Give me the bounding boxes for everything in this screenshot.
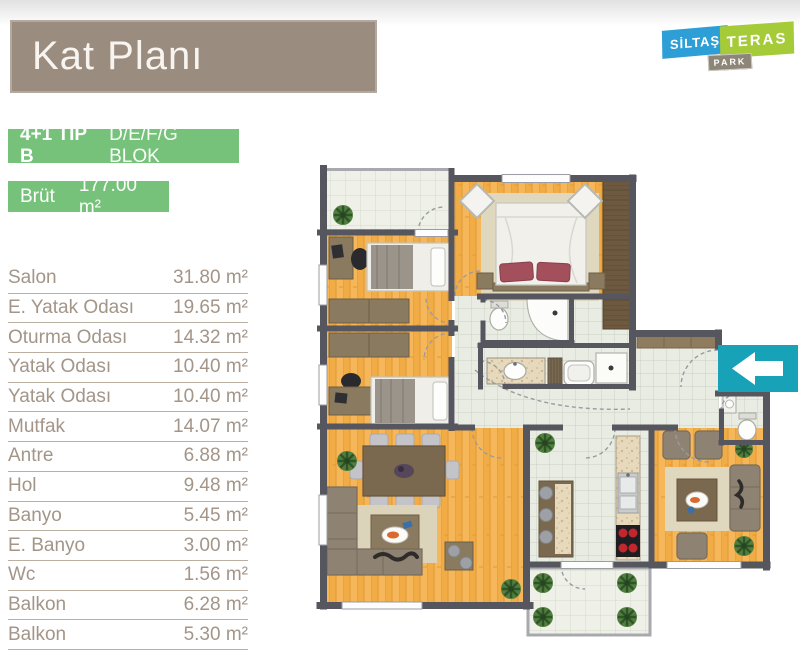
room-name: Balkon <box>8 594 66 616</box>
room-area: 6.28 m² <box>184 594 248 616</box>
table-row: Balkon6.28 m² <box>8 591 248 621</box>
antre-cabinet <box>637 336 717 348</box>
room-area: 5.45 m² <box>184 505 248 527</box>
table-row: Mutfak14.07 m² <box>8 412 248 442</box>
table-row: Banyo5.45 m² <box>8 502 248 532</box>
table-row: Yatak Odası10.40 m² <box>8 383 248 413</box>
room-name: Salon <box>8 267 57 289</box>
room-name: Wc <box>8 564 35 586</box>
unit-type-badge: 4+1 TİP B D/E/F/G BLOK <box>8 129 239 163</box>
table-row: Balkon5.30 m² <box>8 620 248 650</box>
room-area: 3.00 m² <box>184 535 248 557</box>
siltas-teras-park-logo: SİLTAŞ TERAS PARK <box>660 18 794 70</box>
room-area: 10.40 m² <box>173 356 248 378</box>
room-name: Antre <box>8 445 53 467</box>
room-name: Yatak Odası <box>8 386 111 408</box>
main-bath-fixtures <box>487 353 627 385</box>
room-area: 1.56 m² <box>184 564 248 586</box>
gross-area-label: Brüt <box>20 186 55 208</box>
room-area: 9.48 m² <box>184 475 248 497</box>
table-row: E. Yatak Odası19.65 m² <box>8 294 248 324</box>
floor-plan-image <box>315 165 800 663</box>
room-area-table: Salon31.80 m² E. Yatak Odası19.65 m² Otu… <box>8 264 248 650</box>
table-row: Wc1.56 m² <box>8 561 248 591</box>
room-name: E. Yatak Odası <box>8 297 134 319</box>
room-name: E. Banyo <box>8 535 85 557</box>
page-title: Kat Planı <box>32 34 203 79</box>
room-area: 14.07 m² <box>173 416 248 438</box>
gross-area-value: 177.00 m² <box>79 175 157 219</box>
page-header-banner: Kat Planı <box>10 20 377 93</box>
logo-park-shape: PARK <box>708 53 753 71</box>
table-row: Hol9.48 m² <box>8 472 248 502</box>
table-row: Oturma Odası14.32 m² <box>8 323 248 353</box>
room-area: 5.30 m² <box>184 624 248 646</box>
room-area: 19.65 m² <box>173 297 248 319</box>
table-row: Antre6.88 m² <box>8 442 248 472</box>
table-row: Salon31.80 m² <box>8 264 248 294</box>
room-name: Yatak Odası <box>8 356 111 378</box>
table-row: Yatak Odası10.40 m² <box>8 353 248 383</box>
room-name: Banyo <box>8 505 62 527</box>
entrance-arrow <box>718 345 798 392</box>
room-area: 14.32 m² <box>173 327 248 349</box>
unit-block-label: D/E/F/G BLOK <box>109 124 227 168</box>
room-name: Balkon <box>8 624 66 646</box>
room-name: Mutfak <box>8 416 65 438</box>
table-row: E. Banyo3.00 m² <box>8 531 248 561</box>
room-name: Hol <box>8 475 37 497</box>
unit-type-label: 4+1 TİP B <box>20 124 101 168</box>
room-area: 6.88 m² <box>184 445 248 467</box>
room-name: Oturma Odası <box>8 327 127 349</box>
gross-area-badge: Brüt 177.00 m² <box>8 181 169 212</box>
room-area: 10.40 m² <box>173 386 248 408</box>
room-area: 31.80 m² <box>173 267 248 289</box>
kat-plani-page: { "header": { "title": "Kat Planı", "bg_… <box>0 0 800 663</box>
